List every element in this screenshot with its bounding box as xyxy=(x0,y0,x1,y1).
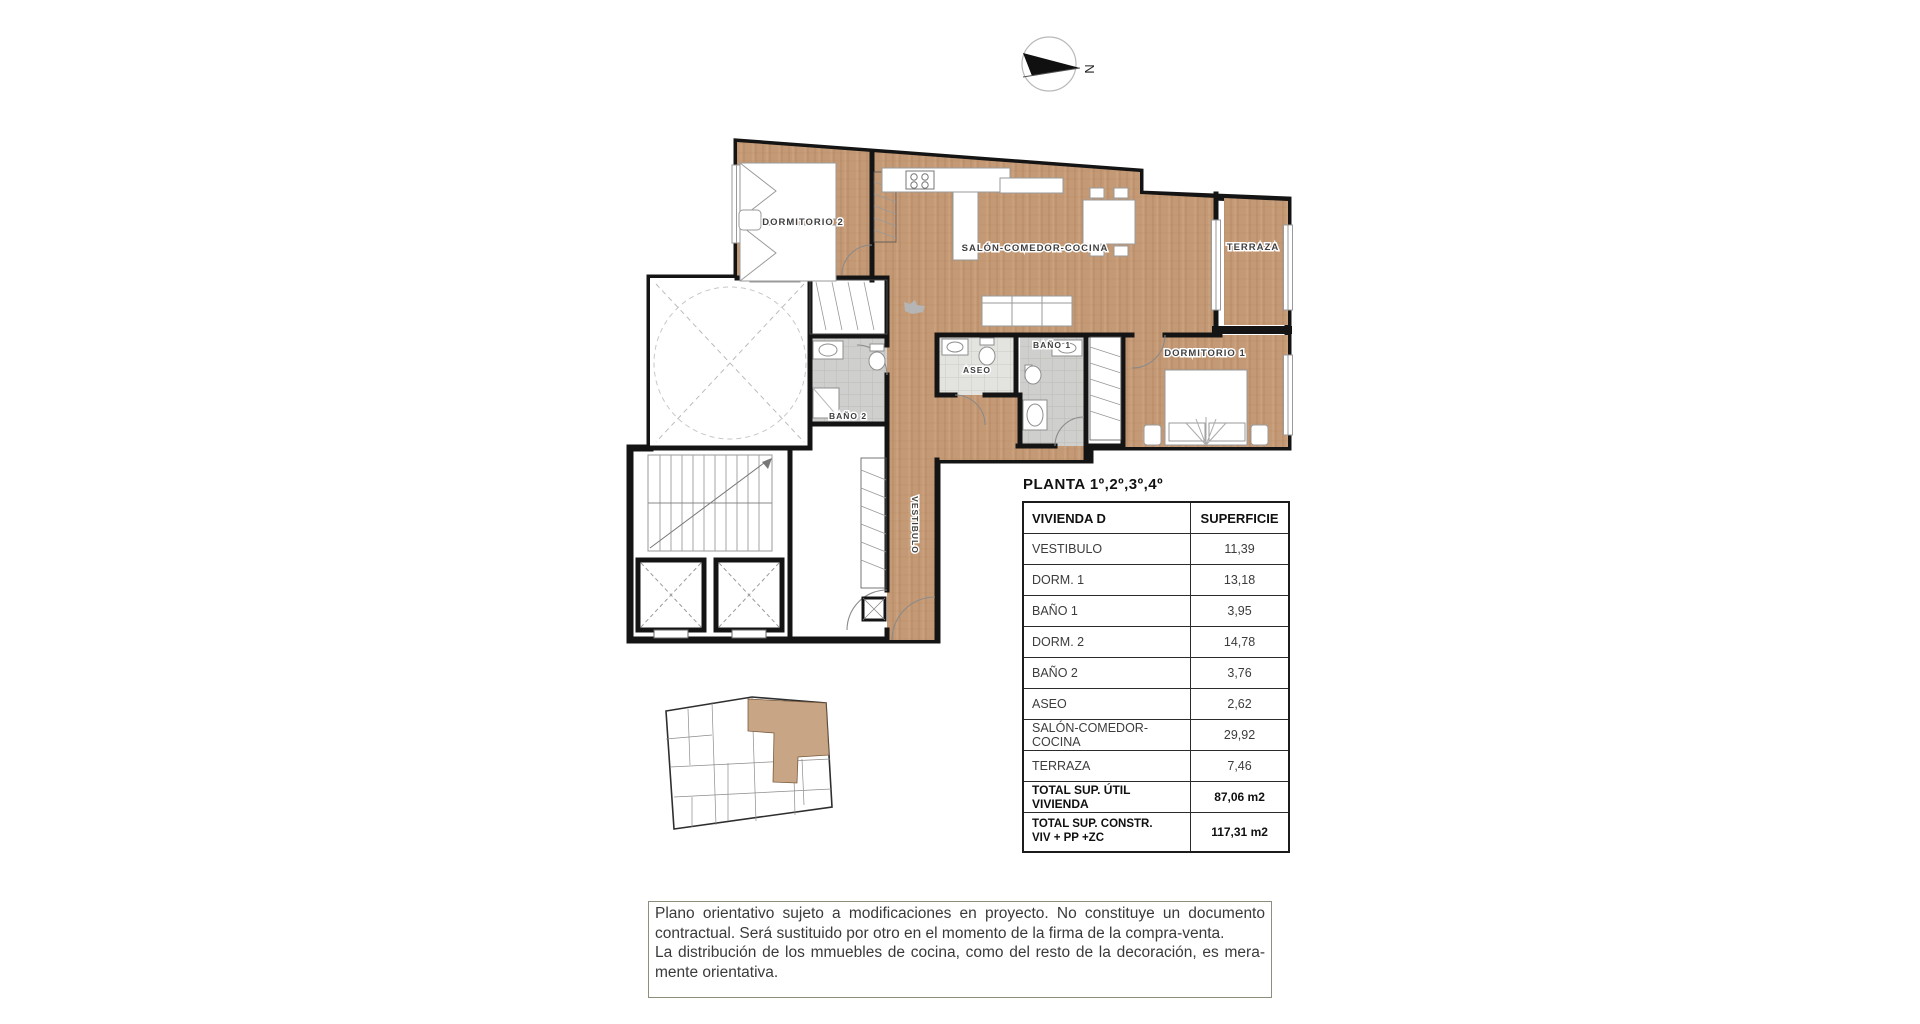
row-label: DORM. 1 xyxy=(1023,565,1191,596)
table-row: BAÑO 23,76 xyxy=(1023,658,1289,689)
row-label: DORM. 2 xyxy=(1023,627,1191,658)
row-label: BAÑO 2 xyxy=(1023,658,1191,689)
label-dormitorio1: DORMITORIO 1 xyxy=(1164,348,1246,359)
total-constr-label: TOTAL SUP. CONSTR. VIV + PP +ZC xyxy=(1023,813,1191,853)
col-header-vivienda: VIVIENDA D xyxy=(1023,502,1191,534)
col-header-superficie: SUPERFICIE xyxy=(1191,502,1289,534)
label-salon: SALÓN-COMEDOR-COCINA xyxy=(962,242,1109,254)
surface-table-section: PLANTA 1º,2º,3º,4º VIVIENDA D SUPERFICIE… xyxy=(1022,476,1290,853)
label-vestibulo: VESTIBULO xyxy=(910,496,920,554)
row-value: 14,78 xyxy=(1191,627,1289,658)
surface-table: VIVIENDA D SUPERFICIE VESTIBULO11,39 DOR… xyxy=(1022,501,1290,853)
row-value: 29,92 xyxy=(1191,720,1289,751)
row-label: ASEO xyxy=(1023,689,1191,720)
row-value: 7,46 xyxy=(1191,751,1289,782)
table-total-constr-row: TOTAL SUP. CONSTR. VIV + PP +ZC 117,31 m… xyxy=(1023,813,1289,853)
total-constr-label-line1: TOTAL SUP. CONSTR. xyxy=(1032,818,1190,832)
table-row: BAÑO 13,95 xyxy=(1023,596,1289,627)
table-row: DORM. 214,78 xyxy=(1023,627,1289,658)
row-value: 2,62 xyxy=(1191,689,1289,720)
total-util-value: 87,06 m2 xyxy=(1191,782,1289,813)
total-constr-value: 117,31 m2 xyxy=(1191,813,1289,853)
label-aseo: ASEO xyxy=(963,365,991,375)
total-constr-label-line2: VIV + PP +ZC xyxy=(1032,832,1190,846)
room-terraza-floor xyxy=(1224,198,1288,325)
plan-title: PLANTA 1º,2º,3º,4º xyxy=(1023,476,1290,493)
label-terraza: TERRAZA xyxy=(1227,242,1279,253)
row-value: 11,39 xyxy=(1191,534,1289,565)
label-bano2: BAÑO 2 xyxy=(829,411,867,421)
row-value: 13,18 xyxy=(1191,565,1289,596)
row-label: SALÓN-COMEDOR-COCINA xyxy=(1023,720,1191,751)
row-value: 3,95 xyxy=(1191,596,1289,627)
row-label: BAÑO 1 xyxy=(1023,596,1191,627)
floorplan-page: N xyxy=(0,0,1920,1024)
table-row: DORM. 113,18 xyxy=(1023,565,1289,596)
room-vestibulo-floor xyxy=(887,335,937,640)
row-label: VESTIBULO xyxy=(1023,534,1191,565)
north-label: N xyxy=(1082,64,1097,73)
row-value: 3,76 xyxy=(1191,658,1289,689)
row-label: TERRAZA xyxy=(1023,751,1191,782)
table-row: VESTIBULO11,39 xyxy=(1023,534,1289,565)
table-row: ASEO2,62 xyxy=(1023,689,1289,720)
table-row: SALÓN-COMEDOR-COCINA29,92 xyxy=(1023,720,1289,751)
compass-rose: N xyxy=(1005,20,1097,102)
disclaimer-box: Plano orientativo sujeto a modificacione… xyxy=(648,901,1272,998)
patio-lightwell xyxy=(650,278,810,448)
table-header-row: VIVIENDA D SUPERFICIE xyxy=(1023,502,1289,534)
label-bano1: BAÑO 1 xyxy=(1033,340,1071,350)
label-dormitorio2: DORMITORIO 2 xyxy=(762,217,844,228)
key-plan xyxy=(652,685,844,847)
table-total-util-row: TOTAL SUP. ÚTIL VIVIENDA 87,06 m2 xyxy=(1023,782,1289,813)
table-row: TERRAZA7,46 xyxy=(1023,751,1289,782)
total-util-label: TOTAL SUP. ÚTIL VIVIENDA xyxy=(1023,782,1191,813)
